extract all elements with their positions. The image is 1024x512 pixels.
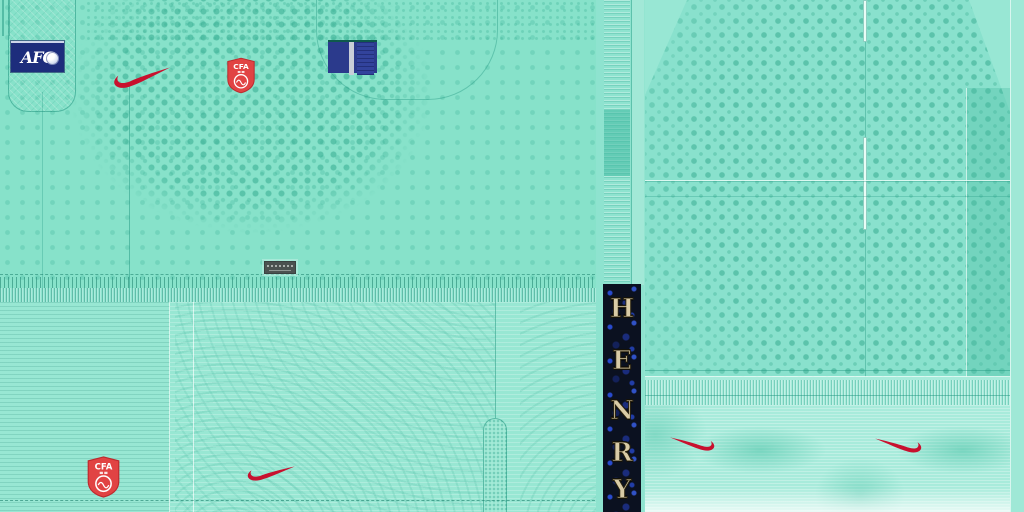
back-slit — [863, 0, 867, 42]
cfa-crest-front: CFA — [227, 57, 255, 94]
back-horizontal-seam — [645, 180, 1010, 181]
afc-badge: AFC — [11, 41, 64, 72]
halftone-dots-back — [645, 0, 1010, 377]
hem-dashed-line — [0, 274, 600, 275]
kit-texture-sheet: AFC CFA — [0, 0, 1024, 512]
shirt-front-panel: AFC CFA — [0, 0, 600, 288]
vertical-seam — [129, 86, 130, 288]
fern-pattern — [520, 302, 600, 512]
jock-tag-text-row — [269, 270, 291, 271]
waistband-rib — [0, 288, 600, 302]
cfa-crest-label: CFA — [233, 62, 249, 71]
sock-rib-band — [645, 380, 1010, 405]
shorts-hem-dashed-line — [0, 500, 600, 501]
collar-light-strip — [632, 0, 644, 285]
back-horizontal-seam — [645, 196, 1010, 197]
name-letter: Y — [604, 477, 640, 503]
texture-edge-column — [1010, 0, 1024, 512]
cfa-crest-shorts: CFA — [87, 456, 120, 498]
number-patch-bar — [349, 42, 354, 75]
jock-tag — [264, 261, 296, 274]
shorts-center-seam — [495, 302, 496, 420]
number-patch — [328, 40, 377, 73]
sock-rib-line — [645, 395, 1010, 396]
socks-panel — [645, 377, 1010, 512]
hem-tick-band — [0, 277, 600, 288]
nike-swoosh-shorts — [247, 462, 295, 485]
name-letter: E — [604, 348, 640, 374]
vertical-seam — [42, 92, 43, 288]
sock-bottom-fade — [645, 487, 1010, 512]
shorts-stripe-panel — [0, 302, 170, 512]
shorts-gusset — [483, 418, 507, 512]
shirt-back-panel — [645, 0, 1010, 377]
name-letter: R — [604, 440, 640, 466]
nike-swoosh-sock-right — [875, 434, 922, 457]
back-slit — [863, 137, 867, 230]
left-edge-seams — [2, 0, 10, 36]
jock-tag-text-row — [267, 265, 294, 267]
name-letter: N — [604, 398, 640, 424]
name-letter: H — [604, 296, 640, 322]
globe-icon — [46, 52, 59, 65]
shorts-panel: CFA — [0, 302, 600, 512]
nike-swoosh-front — [112, 62, 172, 94]
player-name-strip: H E N R Y — [604, 285, 640, 512]
back-bottom-seam — [645, 370, 1010, 377]
nike-swoosh-sock-left — [670, 433, 715, 455]
cfa-crest-label: CFA — [95, 462, 113, 472]
shorts-seam — [193, 302, 194, 512]
fern-pattern — [175, 302, 495, 512]
back-side-panel — [966, 88, 1010, 377]
collar-dark-band — [604, 110, 630, 176]
number-patch-shading — [357, 42, 374, 75]
